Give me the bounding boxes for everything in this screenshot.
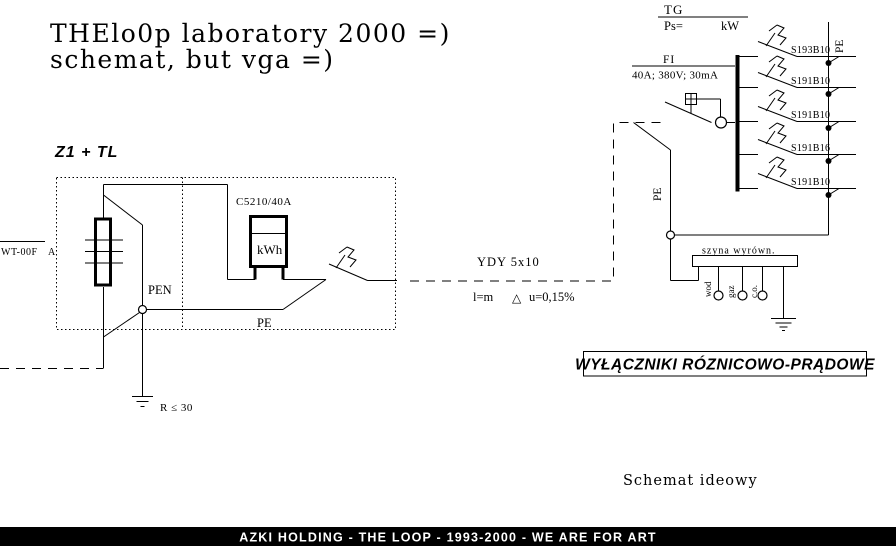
tg-power-label: Ps= (664, 19, 683, 33)
title-line1: THElo0p laboratory 2000 =) (50, 19, 451, 48)
trip-flash-icon (766, 90, 786, 111)
fuse-type-label: WT-00F (1, 247, 38, 258)
meter-terminals (255, 267, 283, 280)
breaker-label: S191B10 (791, 76, 830, 87)
pe-tap-tick (829, 189, 840, 196)
main-switch (283, 247, 397, 281)
energy-meter: C5210/40A kWh (236, 196, 292, 280)
tap-terminal-co (758, 291, 767, 300)
pe-label-right: PE (834, 40, 846, 53)
trip-flash-icon (766, 157, 786, 178)
trip-flash-icon (766, 25, 786, 46)
footer-bar: AZKI HOLDING - THE LOOP - 1993-2000 - WE… (0, 527, 896, 546)
enclosure-dashed-box (57, 178, 396, 330)
voltage-drop-label: u=0,15% (529, 290, 575, 304)
trip-flash-icon (336, 247, 356, 268)
tg-name: TG (664, 2, 683, 17)
delta-symbol: △ (512, 291, 522, 305)
equipotential-bus-bar (693, 256, 798, 267)
pen-branch-lower (104, 313, 140, 338)
breaker-label: S191B10 (791, 177, 830, 188)
main-enclosure: Z1 + TL (54, 144, 396, 330)
title-line2: schemat, but vga =) (50, 45, 335, 74)
fuse-disconnector (85, 219, 123, 285)
pe-tap-dot (826, 125, 832, 131)
caption-text: Schemat ideowy (623, 473, 758, 489)
pe-label-left: PE (257, 316, 272, 330)
fi-rating: 40A; 380V; 30mA (632, 70, 718, 82)
trip-flash-icon (766, 123, 786, 144)
meter-model-label: C5210/40A (236, 196, 292, 208)
pe-junction (667, 231, 675, 239)
breaker-label: S191B16 (791, 143, 830, 154)
enclosure-label: Z1 + TL (54, 144, 118, 161)
pe-tap-tick (829, 57, 840, 64)
fuse-phase-mark: A (48, 247, 56, 258)
breaker-row-4: S191B16 (737, 123, 856, 164)
pe-conductor-left: PE (147, 280, 327, 331)
schematic-svg: THElo0p laboratory 2000 =) schemat, but … (0, 0, 896, 546)
tap-terminal-wod (714, 291, 723, 300)
equipotential-bus: szyna wyrówn. wod gaz c.o. (693, 246, 798, 331)
supply-cable-ydy: YDY 5x10 l=m △ u=0,15% (410, 123, 662, 306)
earth-resistance-note: R ≤ 30 (160, 402, 193, 414)
tap-label-co: c.o. (749, 285, 759, 298)
cable-type-label: YDY 5x10 (477, 255, 540, 269)
tap-label-gaz: gaz (726, 286, 736, 299)
equipotential-bus-label: szyna wyrówn. (702, 246, 776, 257)
pen-label: PEN (148, 283, 172, 297)
breaker-label: S193B10 (791, 45, 830, 56)
breaker-row-5: S191B10 (737, 157, 856, 198)
pe-tap-tick (829, 122, 840, 129)
pe-rise (283, 280, 326, 310)
pe-tap-tick (829, 88, 840, 95)
rcd-note-text: WYŁĄCZNIKI RÓZNICOWO-PRĄDOWE (575, 356, 875, 374)
tap-label-wod: wod (703, 281, 713, 297)
fuse-cross-lines (85, 240, 123, 263)
pen-node: PEN R ≤ 30 (104, 195, 193, 414)
breaker-label: S191B10 (791, 110, 830, 121)
fi-coil-circle (716, 117, 727, 128)
pen-junction (139, 306, 147, 314)
fi-blade (665, 102, 712, 123)
phase-run-to-meter (104, 185, 256, 280)
tg-header: TG Ps= kW (658, 2, 748, 33)
fi-rcd: FI 40A; 380V; 30mA (632, 54, 735, 128)
tap-terminal-gaz (738, 291, 747, 300)
pe-to-equipotential (671, 239, 699, 281)
cable-length-label: l=m (473, 290, 494, 304)
rcd-note-box: WYŁĄCZNIKI RÓZNICOWO-PRĄDOWE (575, 352, 875, 377)
pe-branch-diag (634, 123, 671, 151)
pe-label-mid: PE (652, 188, 664, 201)
footer-text: AZKI HOLDING - THE LOOP - 1993-2000 - WE… (239, 531, 657, 545)
schematic-page: THElo0p laboratory 2000 =) schemat, but … (0, 0, 896, 546)
breaker-row-2: S191B10 (737, 56, 856, 97)
fi-name: FI (663, 54, 675, 66)
trip-flash-icon (766, 56, 786, 77)
incoming-supply: WT-00F A (0, 185, 104, 369)
title-block: THElo0p laboratory 2000 =) schemat, but … (50, 19, 451, 74)
fi-release-cross (686, 94, 697, 105)
bus-earth-symbol (771, 319, 796, 331)
switch-blade (329, 264, 368, 281)
fi-linkage (691, 99, 721, 117)
breaker-row-3: S191B10 (737, 90, 856, 131)
pe-tap-tick (829, 155, 840, 162)
meter-unit-label: kWh (257, 242, 283, 257)
earth-symbol (132, 397, 153, 407)
tg-power-unit: kW (721, 19, 739, 33)
